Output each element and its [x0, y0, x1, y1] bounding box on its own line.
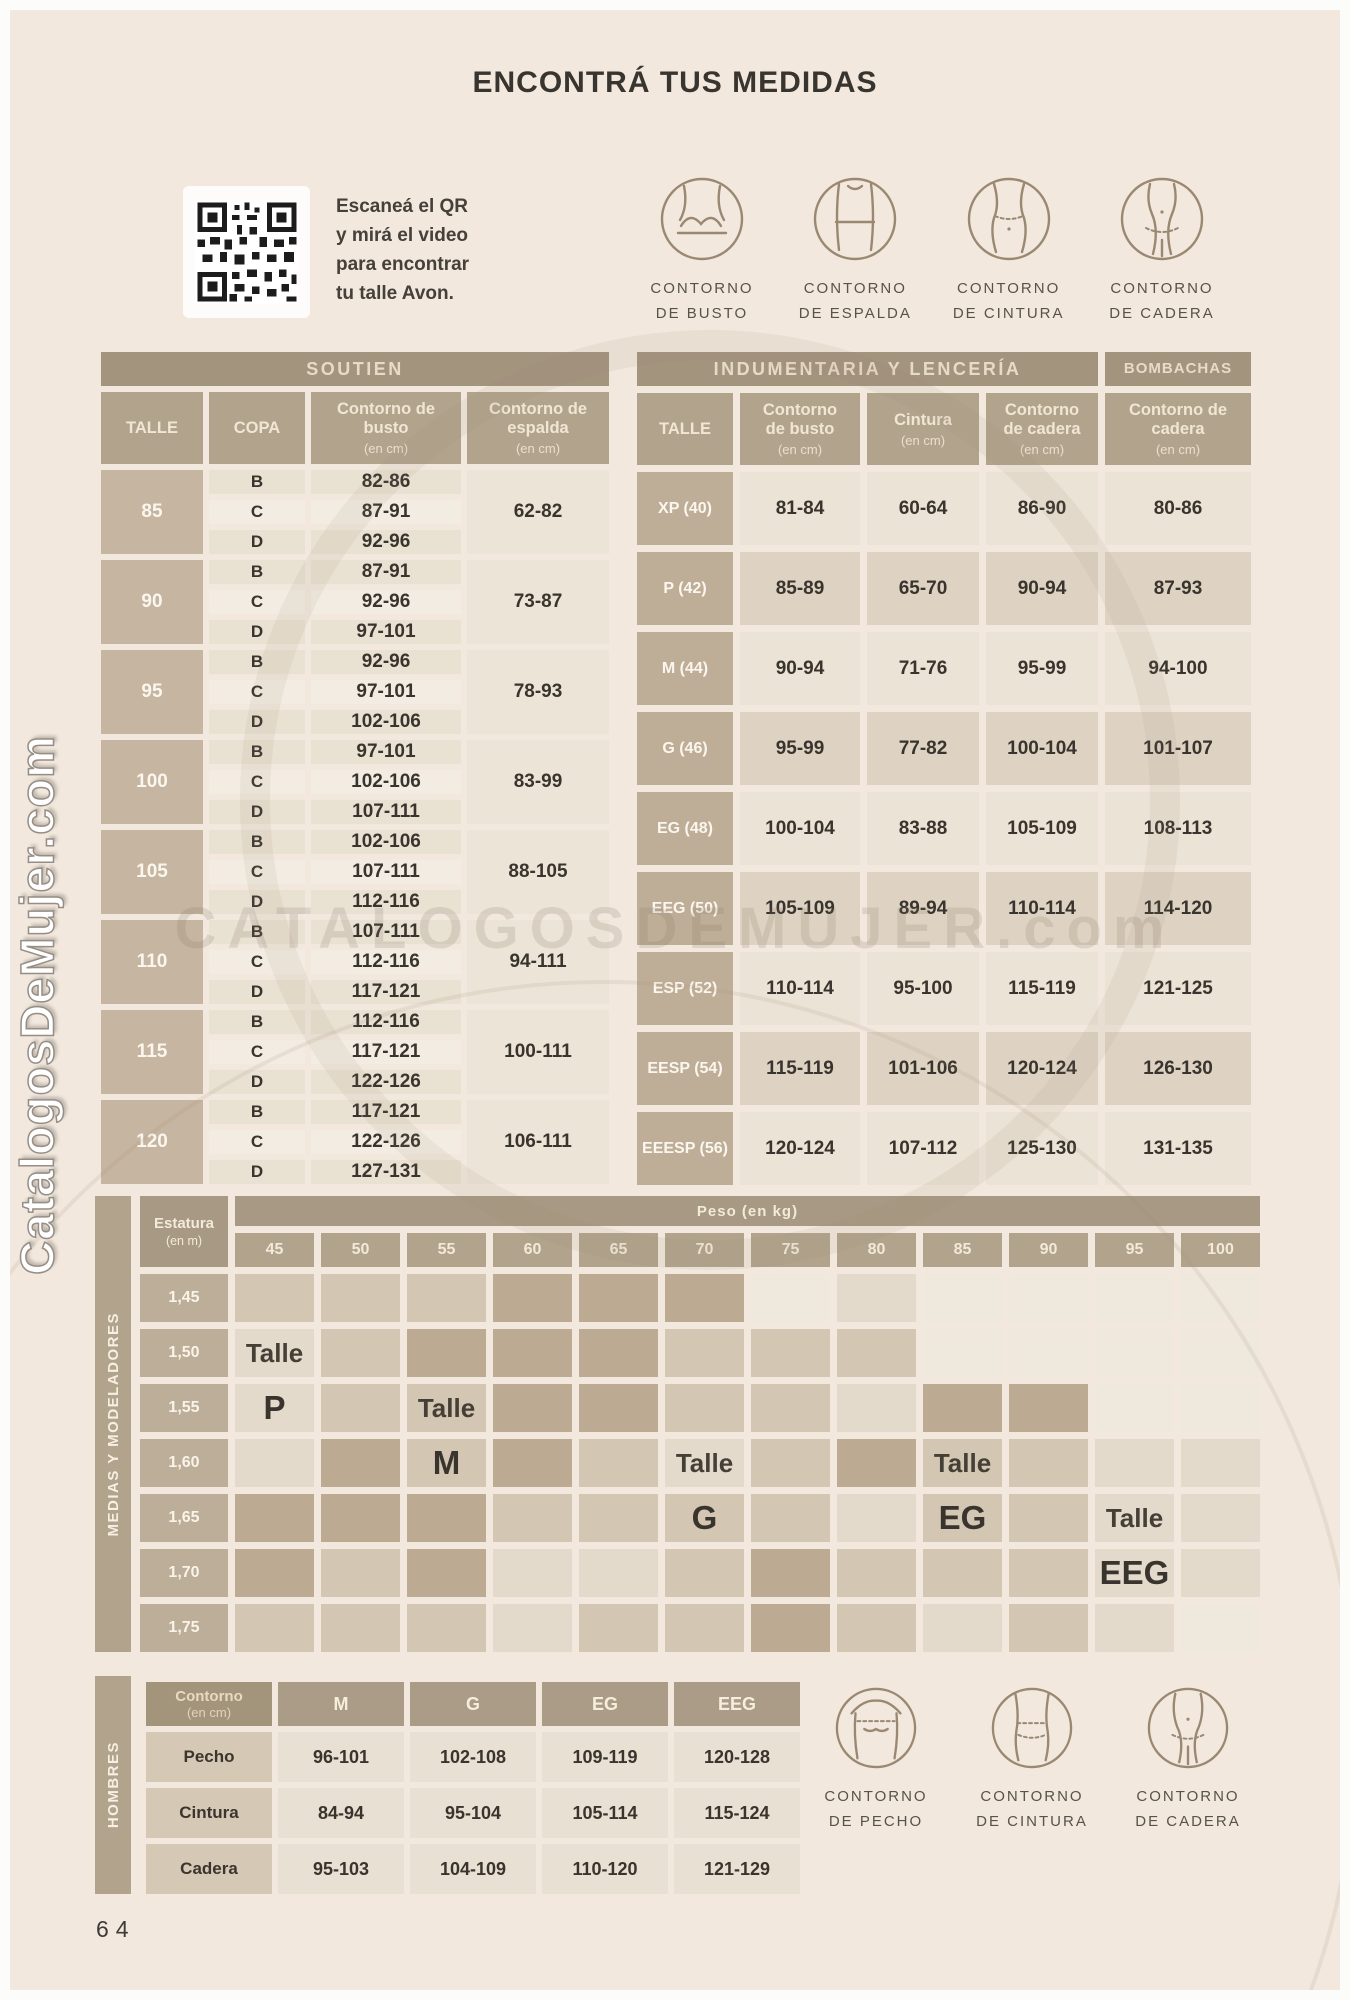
soutien-copa-cell: D: [209, 710, 305, 734]
icon-label: CONTORNO DE CINTURA: [953, 276, 1065, 326]
soutien-busto-cell: 97-101: [311, 680, 461, 704]
weight-column-header: 90: [1009, 1233, 1088, 1267]
medias-grid-cell: [837, 1439, 916, 1487]
hombres-row: Cintura84-9495-104105-114115-124: [146, 1788, 800, 1838]
medias-grid-cell: [579, 1329, 658, 1377]
soutien-copa-cell: D: [209, 800, 305, 824]
soutien-espalda-cell: 83-99: [467, 740, 609, 824]
soutien-copa-cell: C: [209, 860, 305, 884]
medias-grid-cell: [1095, 1384, 1174, 1432]
soutien-copa-cell: C: [209, 500, 305, 524]
indum-talle-cell: EG (48): [637, 792, 733, 865]
medias-grid-cell: [665, 1604, 744, 1652]
page-number: 64: [96, 1916, 136, 1943]
hombres-row: Pecho96-101102-108109-119120-128: [146, 1732, 800, 1782]
talle-zone-label: P: [263, 1389, 285, 1427]
medias-grid-cell: [235, 1494, 314, 1542]
hip-contour-icon: [1119, 176, 1205, 262]
soutien-copa-cell: D: [209, 1070, 305, 1094]
bombachas-cadera-cell: 80-86: [1105, 472, 1251, 545]
soutien-row: 95B92-9678-93: [101, 650, 609, 674]
bombachas-cadera-cell: 121-125: [1105, 952, 1251, 1025]
soutien-copa-cell: D: [209, 620, 305, 644]
hombres-value-cell: 115-124: [674, 1788, 800, 1838]
pecho-measure: CONTORNO DE PECHO: [806, 1686, 946, 1834]
icon-label-line: DE CINTURA: [976, 1809, 1088, 1834]
medias-grid-cell: [235, 1274, 314, 1322]
weight-column-header: 80: [837, 1233, 916, 1267]
indumentaria-row: EESP (54)115-119101-106120-124126-130: [637, 1032, 1251, 1105]
medias-grid-cell: [493, 1329, 572, 1377]
medias-grid-cell: [1009, 1549, 1088, 1597]
soutien-row: 100B97-10183-99: [101, 740, 609, 764]
medias-grid-cell: [751, 1604, 830, 1652]
medias-grid-cell: [1181, 1604, 1260, 1652]
indum-cadera-cell: 90-94: [986, 552, 1098, 625]
indum-col-cadera: Contorno de cadera(en cm): [986, 393, 1098, 465]
catalog-page: CATALOGOSDEMUJER.com ENCONTRÁ TUS MEDIDA…: [0, 0, 1350, 2000]
indum-col-talle: TALLE: [637, 393, 733, 465]
soutien-busto-cell: 127-131: [311, 1160, 461, 1184]
side-watermark: CatalogosDeMujer.com: [10, 735, 65, 1275]
indum-cintura-cell: 89-94: [867, 872, 979, 945]
medias-grid-cell: P: [235, 1384, 314, 1432]
indum-busto-cell: 100-104: [740, 792, 860, 865]
medias-grid-cell: [923, 1384, 1002, 1432]
hombres-value-cell: 109-119: [542, 1732, 668, 1782]
medias-grid-cell: [407, 1494, 486, 1542]
bombachas-col-cadera: Contorno de cadera(en cm): [1105, 393, 1251, 465]
medias-grid-cell: [1009, 1494, 1088, 1542]
cintura-measure: CONTORNO DE CINTURA: [937, 176, 1081, 326]
bombachas-cadera-cell: 131-135: [1105, 1112, 1251, 1185]
indum-col-cintura: Cintura(en cm): [867, 393, 979, 465]
indum-busto-cell: 120-124: [740, 1112, 860, 1185]
soutien-espalda-cell: 78-93: [467, 650, 609, 734]
icon-label-line: CONTORNO: [824, 1784, 927, 1809]
indum-busto-cell: 90-94: [740, 632, 860, 705]
bombachas-cadera-cell: 108-113: [1105, 792, 1251, 865]
indum-busto-cell: 95-99: [740, 712, 860, 785]
medias-grid-cell: [665, 1549, 744, 1597]
soutien-busto-cell: 122-126: [311, 1070, 461, 1094]
medias-grid-cell: [1181, 1384, 1260, 1432]
height-row-label: 1,55: [140, 1384, 228, 1432]
indumentaria-row: EEESP (56)120-124107-112125-130131-135: [637, 1112, 1251, 1185]
back-contour-icon: [812, 176, 898, 262]
medias-grid-cell: [493, 1494, 572, 1542]
soutien-copa-cell: D: [209, 980, 305, 1004]
indum-cadera-cell: 95-99: [986, 632, 1098, 705]
soutien-busto-cell: 82-86: [311, 470, 461, 494]
soutien-busto-cell: 102-106: [311, 710, 461, 734]
medias-grid-cell: [923, 1274, 1002, 1322]
soutien-busto-cell: 87-91: [311, 500, 461, 524]
qr-instruction-line: y mirá el video: [336, 221, 469, 250]
indum-talle-cell: EEESP (56): [637, 1112, 733, 1185]
medias-grid-cell: [579, 1439, 658, 1487]
indum-cintura-cell: 65-70: [867, 552, 979, 625]
indum-busto-cell: 81-84: [740, 472, 860, 545]
medias-grid-cell: [493, 1604, 572, 1652]
icon-label: CONTORNO DE ESPALDA: [799, 276, 912, 326]
icon-label-line: CONTORNO: [1109, 276, 1215, 301]
indum-busto-cell: 110-114: [740, 952, 860, 1025]
page-title-bold: MEDIDAS: [732, 66, 877, 99]
medias-grid-cell: [665, 1384, 744, 1432]
talle-zone-label: Talle: [1106, 1503, 1163, 1534]
talle-zone-label: EG: [939, 1499, 987, 1537]
soutien-row: 120B117-121106-111: [101, 1100, 609, 1124]
soutien-copa-cell: B: [209, 740, 305, 764]
medias-grid-cell: [1009, 1384, 1088, 1432]
soutien-copa-cell: C: [209, 770, 305, 794]
weight-column-header: 50: [321, 1233, 400, 1267]
medias-grid-cell: [1095, 1329, 1174, 1377]
hombres-value-cell: 96-101: [278, 1732, 404, 1782]
indumentaria-row: P (42)85-8965-7090-9487-93: [637, 552, 1251, 625]
icon-label: CONTORNO DE CADERA: [1135, 1784, 1241, 1834]
indumentaria-row: G (46)95-9977-82100-104101-107: [637, 712, 1251, 785]
weight-column-header: 85: [923, 1233, 1002, 1267]
talle-zone-label: M: [433, 1444, 461, 1482]
soutien-busto-cell: 87-91: [311, 560, 461, 584]
soutien-copa-cell: C: [209, 950, 305, 974]
medias-grid-cell: [837, 1604, 916, 1652]
indumentaria-title-bar: INDUMENTARIA Y LENCERÍA: [637, 352, 1098, 386]
medias-grid-cell: [407, 1549, 486, 1597]
soutien-copa-cell: B: [209, 920, 305, 944]
soutien-busto-cell: 117-121: [311, 980, 461, 1004]
icon-label-line: CONTORNO: [976, 1784, 1088, 1809]
medias-grid-cell: [321, 1549, 400, 1597]
qr-instruction-line: para encontrar: [336, 250, 469, 279]
soutien-copa-cell: B: [209, 650, 305, 674]
indum-cintura-cell: 83-88: [867, 792, 979, 865]
soutien-busto-cell: 112-116: [311, 1010, 461, 1034]
soutien-copa-cell: D: [209, 1160, 305, 1184]
indum-cintura-cell: 77-82: [867, 712, 979, 785]
medias-grid-cell: Talle: [923, 1439, 1002, 1487]
indum-cintura-cell: 95-100: [867, 952, 979, 1025]
bombachas-cadera-cell: 101-107: [1105, 712, 1251, 785]
soutien-copa-cell: B: [209, 560, 305, 584]
soutien-copa-cell: B: [209, 470, 305, 494]
estatura-unit: (en m): [166, 1234, 202, 1248]
icon-label-line: DE CINTURA: [953, 301, 1065, 326]
soutien-busto-cell: 97-101: [311, 740, 461, 764]
soutien-talle-cell: 110: [101, 920, 203, 1004]
weight-column-header: 70: [665, 1233, 744, 1267]
estatura-header: Estatura(en m): [140, 1196, 228, 1267]
soutien-talle-cell: 90: [101, 560, 203, 644]
weight-column-header: 100: [1181, 1233, 1260, 1267]
hombres-value-cell: 120-128: [674, 1732, 800, 1782]
medias-grid-cell: [407, 1329, 486, 1377]
medias-grid-cell: [1181, 1439, 1260, 1487]
soutien-row: 90B87-9173-87: [101, 560, 609, 584]
medias-grid-cell: [493, 1384, 572, 1432]
hombres-tbody: Pecho96-101102-108109-119120-128Cintura8…: [146, 1732, 800, 1894]
soutien-busto-cell: 107-111: [311, 860, 461, 884]
hombres-value-cell: 84-94: [278, 1788, 404, 1838]
medias-grid-cell: [321, 1439, 400, 1487]
icon-label: CONTORNO DE CADERA: [1109, 276, 1215, 326]
hombres-measure-label: Cintura: [146, 1788, 272, 1838]
medias-side-strip: MEDIAS Y MODELADORES: [95, 1196, 131, 1652]
chest-contour-icon: [834, 1686, 918, 1770]
soutien-copa-cell: C: [209, 680, 305, 704]
soutien-busto-cell: 92-96: [311, 530, 461, 554]
weight-column-header: 45: [235, 1233, 314, 1267]
medias-grid-cell: M: [407, 1439, 486, 1487]
hombres-row: Cadera95-103104-109110-120121-129: [146, 1844, 800, 1894]
indum-talle-cell: EEG (50): [637, 872, 733, 945]
indumentaria-row: ESP (52)110-11495-100115-119121-125: [637, 952, 1251, 1025]
soutien-busto-cell: 112-116: [311, 950, 461, 974]
indumentaria-row: EEG (50)105-10989-94110-114114-120: [637, 872, 1251, 945]
busto-measure: CONTORNO DE BUSTO: [630, 176, 774, 326]
soutien-row: 85B82-8662-82: [101, 470, 609, 494]
talle-zone-label: Talle: [418, 1393, 475, 1424]
indum-cadera-cell: 120-124: [986, 1032, 1098, 1105]
soutien-table: TALLE COPA Contorno de busto(en cm) Cont…: [95, 386, 615, 1190]
peso-header: Peso (en kg): [235, 1196, 1260, 1226]
indumentaria-section: INDUMENTARIA Y LENCERÍA BOMBACHAS TALLE …: [630, 352, 1258, 1192]
indum-cintura-cell: 107-112: [867, 1112, 979, 1185]
indum-talle-cell: P (42): [637, 552, 733, 625]
cadera-hombre-measure: CONTORNO DE CADERA: [1118, 1686, 1258, 1834]
icon-label: CONTORNO DE PECHO: [824, 1784, 927, 1834]
indum-cadera-cell: 105-109: [986, 792, 1098, 865]
medias-grid-cell: [751, 1494, 830, 1542]
bombachas-cadera-cell: 114-120: [1105, 872, 1251, 945]
medias-grid-cell: [321, 1604, 400, 1652]
medias-grid-cell: [493, 1439, 572, 1487]
medias-grid-cell: [321, 1329, 400, 1377]
talle-zone-label: Talle: [934, 1448, 991, 1479]
medias-grid-cell: [1009, 1604, 1088, 1652]
cintura-hombre-measure: CONTORNO DE CINTURA: [962, 1686, 1102, 1834]
hombres-value-cell: 102-108: [410, 1732, 536, 1782]
height-row-label: 1,75: [140, 1604, 228, 1652]
medias-grid-cell: [1181, 1549, 1260, 1597]
soutien-espalda-cell: 106-111: [467, 1100, 609, 1184]
indum-talle-cell: ESP (52): [637, 952, 733, 1025]
indum-col-busto: Contorno de busto(en cm): [740, 393, 860, 465]
soutien-row: 115B112-116100-111: [101, 1010, 609, 1034]
bombachas-cadera-cell: 94-100: [1105, 632, 1251, 705]
hombres-value-cell: 121-129: [674, 1844, 800, 1894]
measurement-icons-row: CONTORNO DE BUSTO CONTORNO DE ESPALDA: [630, 176, 1234, 326]
medias-grid-cell: [751, 1384, 830, 1432]
indumentaria-table: TALLE Contorno de busto(en cm) Cintura(e…: [630, 386, 1258, 1192]
medias-grid-cell: [321, 1494, 400, 1542]
soutien-copa-cell: D: [209, 890, 305, 914]
soutien-copa-cell: C: [209, 1040, 305, 1064]
bombachas-title-bar: BOMBACHAS: [1105, 352, 1251, 386]
icon-label-line: CONTORNO: [799, 276, 912, 301]
medias-grid-cell: [407, 1274, 486, 1322]
icon-label-line: CONTORNO: [1135, 1784, 1241, 1809]
soutien-talle-cell: 120: [101, 1100, 203, 1184]
indum-talle-cell: G (46): [637, 712, 733, 785]
soutien-col-espalda: Contorno de espalda(en cm): [467, 392, 609, 464]
hombres-side-label: HOMBRES: [105, 1741, 122, 1828]
medias-grid-cell: [837, 1384, 916, 1432]
soutien-title-bar: SOUTIEN: [101, 352, 609, 386]
soutien-espalda-cell: 94-111: [467, 920, 609, 1004]
weight-column-header: 60: [493, 1233, 572, 1267]
medias-grid-cell: [923, 1549, 1002, 1597]
icon-label-line: DE BUSTO: [650, 301, 753, 326]
soutien-copa-cell: D: [209, 530, 305, 554]
icon-label-line: DE CADERA: [1135, 1809, 1241, 1834]
icon-label: CONTORNO DE CINTURA: [976, 1784, 1088, 1834]
medias-grid-cell: Talle: [1095, 1494, 1174, 1542]
medias-grid-cell: [1095, 1604, 1174, 1652]
medias-grid-cell: [1009, 1329, 1088, 1377]
soutien-espalda-cell: 73-87: [467, 560, 609, 644]
medias-grid-cell: [837, 1329, 916, 1377]
hombres-col-contorno: Contorno(en cm): [146, 1682, 272, 1726]
indumentaria-row: XP (40)81-8460-6486-9080-86: [637, 472, 1251, 545]
male-measurement-icons-row: CONTORNO DE PECHO CONTORNO DE CINTURA: [806, 1686, 1258, 1834]
hombres-col-eeg: EEG: [674, 1682, 800, 1726]
medias-grid-cell: [1009, 1274, 1088, 1322]
hombres-value-cell: 110-120: [542, 1844, 668, 1894]
medias-grid-cell: [235, 1604, 314, 1652]
talle-zone-label: EEG: [1100, 1554, 1170, 1592]
weight-column-header: 95: [1095, 1233, 1174, 1267]
medias-grid-cell: [579, 1604, 658, 1652]
hombres-value-cell: 105-114: [542, 1788, 668, 1838]
soutien-talle-cell: 85: [101, 470, 203, 554]
indum-talle-cell: M (44): [637, 632, 733, 705]
waist-contour-icon: [990, 1686, 1074, 1770]
soutien-copa-cell: B: [209, 1100, 305, 1124]
medias-grid-cell: Talle: [407, 1384, 486, 1432]
medias-grid-cell: [1181, 1329, 1260, 1377]
soutien-busto-cell: 112-116: [311, 890, 461, 914]
indum-cadera-cell: 86-90: [986, 472, 1098, 545]
medias-grid-cell: [493, 1274, 572, 1322]
soutien-row: 105B102-10688-105: [101, 830, 609, 854]
indum-cintura-cell: 101-106: [867, 1032, 979, 1105]
bust-contour-icon: [659, 176, 745, 262]
soutien-busto-cell: 107-111: [311, 800, 461, 824]
medias-grid-cell: [1009, 1439, 1088, 1487]
height-row-label: 1,65: [140, 1494, 228, 1542]
icon-label-line: DE PECHO: [824, 1809, 927, 1834]
indum-busto-cell: 115-119: [740, 1032, 860, 1105]
height-row-label: 1,70: [140, 1549, 228, 1597]
indum-talle-cell: EESP (54): [637, 1032, 733, 1105]
indum-cintura-cell: 60-64: [867, 472, 979, 545]
soutien-copa-cell: B: [209, 830, 305, 854]
soutien-espalda-cell: 100-111: [467, 1010, 609, 1094]
waist-contour-icon: [966, 176, 1052, 262]
hip-contour-icon: [1146, 1686, 1230, 1770]
medias-grid-cell: [321, 1274, 400, 1322]
medias-grid-cell: [579, 1549, 658, 1597]
height-row-label: 1,50: [140, 1329, 228, 1377]
medias-grid-cell: [837, 1274, 916, 1322]
medias-grid-cell: [235, 1439, 314, 1487]
indum-cadera-cell: 125-130: [986, 1112, 1098, 1185]
medias-grid-cell: [321, 1384, 400, 1432]
page-title: ENCONTRÁ TUS MEDIDAS: [0, 66, 1350, 100]
medias-grid-cell: [579, 1274, 658, 1322]
soutien-col-copa: COPA: [209, 392, 305, 464]
medias-grid-cell: EEG: [1095, 1549, 1174, 1597]
medias-grid-cell: [751, 1549, 830, 1597]
soutien-busto-cell: 117-121: [311, 1040, 461, 1064]
weight-column-header: 65: [579, 1233, 658, 1267]
icon-label: CONTORNO DE BUSTO: [650, 276, 753, 326]
medias-grid-cell: [1095, 1274, 1174, 1322]
soutien-espalda-cell: 88-105: [467, 830, 609, 914]
icon-label-line: DE ESPALDA: [799, 301, 912, 326]
hombres-col-eg: EG: [542, 1682, 668, 1726]
soutien-talle-cell: 95: [101, 650, 203, 734]
indum-cintura-cell: 71-76: [867, 632, 979, 705]
medias-grid-cell: [235, 1549, 314, 1597]
bombachas-cadera-cell: 87-93: [1105, 552, 1251, 625]
medias-grid-cell: [665, 1329, 744, 1377]
soutien-copa-cell: C: [209, 1130, 305, 1154]
medias-grid-cell: Talle: [235, 1329, 314, 1377]
soutien-busto-cell: 107-111: [311, 920, 461, 944]
espalda-measure: CONTORNO DE ESPALDA: [783, 176, 927, 326]
indum-cadera-cell: 100-104: [986, 712, 1098, 785]
hombres-value-cell: 95-103: [278, 1844, 404, 1894]
soutien-talle-cell: 115: [101, 1010, 203, 1094]
hombres-col-m: M: [278, 1682, 404, 1726]
indum-cadera-cell: 115-119: [986, 952, 1098, 1025]
hombres-value-cell: 95-104: [410, 1788, 536, 1838]
soutien-busto-cell: 117-121: [311, 1100, 461, 1124]
hombres-measure-label: Cadera: [146, 1844, 272, 1894]
qr-code-icon: [195, 200, 299, 304]
indumentaria-row: M (44)90-9471-7695-9994-100: [637, 632, 1251, 705]
soutien-copa-cell: B: [209, 1010, 305, 1034]
soutien-busto-cell: 102-106: [311, 770, 461, 794]
medias-size-grid: Estatura(en m)Peso (en kg)45505560657075…: [140, 1196, 1260, 1652]
bombachas-cadera-cell: 126-130: [1105, 1032, 1251, 1105]
medias-grid-cell: [665, 1274, 744, 1322]
icon-label-line: CONTORNO: [953, 276, 1065, 301]
hombres-section: Contorno(en cm) M G EG EEG Pecho96-10110…: [140, 1676, 806, 1900]
estatura-label: Estatura: [154, 1215, 214, 1232]
medias-grid-cell: [751, 1274, 830, 1322]
soutien-busto-cell: 92-96: [311, 650, 461, 674]
medias-grid-cell: [923, 1604, 1002, 1652]
soutien-espalda-cell: 62-82: [467, 470, 609, 554]
talle-zone-label: Talle: [246, 1338, 303, 1369]
indum-cadera-cell: 110-114: [986, 872, 1098, 945]
qr-instruction-line: tu talle Avon.: [336, 279, 469, 308]
hombres-table: Contorno(en cm) M G EG EEG Pecho96-10110…: [140, 1676, 806, 1900]
hombres-measure-label: Pecho: [146, 1732, 272, 1782]
indumentaria-row: EG (48)100-10483-88105-109108-113: [637, 792, 1251, 865]
talle-zone-label: Talle: [676, 1448, 733, 1479]
medias-grid-cell: [407, 1604, 486, 1652]
medias-grid-cell: [837, 1494, 916, 1542]
medias-grid-cell: Talle: [665, 1439, 744, 1487]
indum-busto-cell: 85-89: [740, 552, 860, 625]
soutien-col-talle: TALLE: [101, 392, 203, 464]
